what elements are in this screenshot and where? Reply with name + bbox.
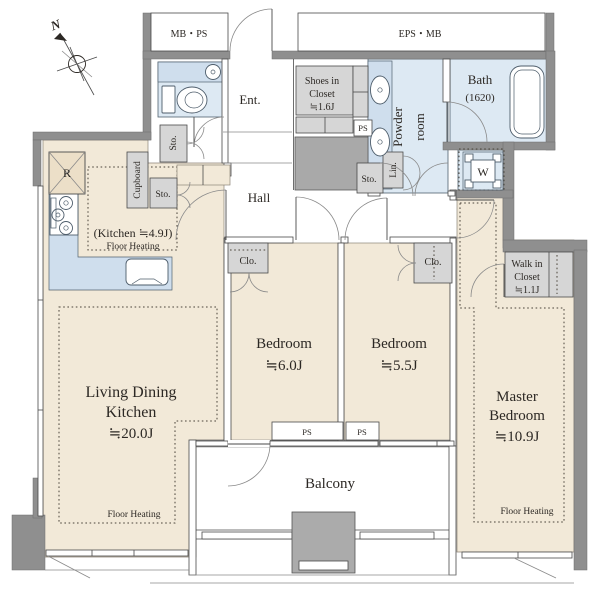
floor-plan-page: N MB・PS EPS・MB Ent. Hall Shoes in Closet…: [0, 0, 600, 600]
stove-burner-3: [60, 222, 73, 235]
refrigerator-label: R: [63, 166, 71, 180]
balcony-partition-slot: [299, 561, 348, 570]
ldk-window-opening-diagonal: [48, 556, 90, 578]
storage-toilet-door-arc-2: [187, 142, 204, 159]
wall-bedroom1-2: [338, 243, 344, 441]
shoes-closet-label-3: ≒1.6J: [310, 102, 335, 113]
ldk-floor-heating-label: Floor Heating: [107, 510, 160, 520]
storage-powder-label: Sto.: [361, 175, 376, 185]
linen-label: Lin.: [389, 162, 399, 178]
stove-burner-2: [52, 209, 64, 221]
wall-kitchen-top: [33, 132, 151, 140]
bath-size-label: (1620): [465, 92, 495, 104]
master-name-label-2: Bedroom: [489, 408, 545, 424]
window-bedroom2-balcony: [380, 441, 454, 446]
window-master-bottom: [462, 552, 572, 558]
balcony-label: Balcony: [305, 476, 355, 492]
window-balcony-mid: [270, 441, 378, 446]
shoes-closet-bottom-cells: [296, 117, 353, 133]
wall-powder-bath: [443, 59, 450, 102]
wall-balcony-right: [449, 446, 456, 575]
toilet-bowl: [177, 87, 207, 113]
window-ldk-left: [38, 186, 43, 516]
powder-sink-2: [371, 128, 390, 156]
wall-top-right: [272, 51, 554, 59]
wall-master-entry-top: [455, 190, 513, 198]
door-opening-bedroom1-balcony: [228, 440, 270, 447]
shoes-closet-side-column: [353, 66, 368, 117]
bedroom2-name-label: Bedroom: [371, 336, 427, 352]
master-floor-heating-label: Floor Heating: [500, 507, 553, 517]
wall-hall-south-a: [225, 237, 293, 243]
powder-sink-1: [371, 76, 390, 104]
bedroom1-balcony-door-arc: [228, 444, 270, 486]
walk-in-closet-label-1: Walk in: [511, 259, 542, 270]
closet-bedroom2-label: Clo.: [425, 257, 442, 268]
wall-hall-south-b: [341, 237, 348, 243]
stove-burner-1: [60, 197, 73, 210]
storage-toilet-door-arc-1: [187, 127, 204, 144]
kitchen-sink: [126, 259, 168, 285]
shoes-closet-label-1: Shoes in: [305, 76, 339, 87]
bedroom1-door-arc: [296, 197, 339, 240]
ldk-name-label-2: Kitchen: [106, 404, 157, 421]
compass-icon: [54, 33, 97, 95]
powder-room-label-1: Powder: [390, 106, 405, 146]
hall-counter: [177, 165, 230, 185]
master-name-label-1: Master: [496, 389, 538, 405]
mb-ps-label: MB・PS: [171, 29, 208, 40]
eps-mb-label: EPS・MB: [399, 29, 442, 40]
ldk-name-label-1: Living Dining: [85, 384, 176, 401]
wall-right-bath: [546, 51, 555, 150]
bathtub: [510, 66, 544, 138]
hall-label: Hall: [248, 190, 271, 205]
toilet-door-arc: [194, 117, 224, 147]
walk-in-closet-label-2: Closet: [514, 272, 540, 283]
wall-bottom-left-block: [12, 515, 45, 570]
toilet-tank: [162, 86, 175, 113]
floor-plan-canvas: N MB・PS EPS・MB Ent. Hall Shoes in Closet…: [0, 0, 600, 600]
cupboard-label: Cupboard: [133, 161, 143, 199]
bedroom1-area-label: ≒6.0J: [265, 358, 302, 374]
storage-toilet-label: Sto.: [169, 135, 179, 150]
closet-bedroom1-label: Clo.: [240, 256, 257, 267]
wall-left-stub: [33, 140, 41, 186]
wall-ent-west: [222, 59, 228, 163]
wall-powder-south-b: [448, 191, 455, 196]
master-window-opening-diagonal: [514, 558, 556, 578]
kitchen-floor-heating-label: Floor Heating: [106, 242, 159, 252]
balcony-rail-panel-2: [360, 532, 434, 539]
window-ldk-bottom: [46, 550, 188, 556]
entrance-label: Ent.: [239, 92, 260, 107]
bedroom2-area-label: ≒5.5J: [380, 358, 417, 374]
ps-balcony-label-1: PS: [302, 427, 312, 437]
entrance-door-arc: [230, 9, 272, 51]
wall-top-left: [143, 51, 230, 59]
wall-hall-south-c: [390, 237, 456, 243]
shoes-closet-label-2: Closet: [309, 89, 335, 100]
washer-label: W: [477, 165, 489, 179]
bedroom2-door-arc: [345, 198, 387, 240]
powder-room-label-2: room: [412, 113, 427, 140]
ldk-area-label: ≒20.0J: [109, 426, 154, 442]
window-bedroom1-balcony: [196, 441, 228, 446]
ps-balcony-label-2: PS: [357, 427, 367, 437]
storage-hall-label: Sto.: [155, 190, 170, 200]
ps-shoes-label: PS: [358, 123, 368, 133]
compass-north-label: N: [48, 16, 63, 34]
bath-label: Bath: [468, 72, 493, 87]
walk-in-closet-label-3: ≒1.1J: [515, 285, 540, 296]
kitchen-label: (Kitchen ≒4.9J): [94, 226, 173, 240]
wall-balcony-left: [189, 440, 196, 575]
wall-right-lower: [574, 250, 587, 570]
wall-left-top: [143, 13, 151, 140]
bedroom1-name-label: Bedroom: [256, 336, 312, 352]
balcony-rail-panel-1: [202, 532, 292, 539]
toilet-sink: [206, 65, 221, 80]
master-area-label: ≒10.9J: [495, 429, 540, 445]
